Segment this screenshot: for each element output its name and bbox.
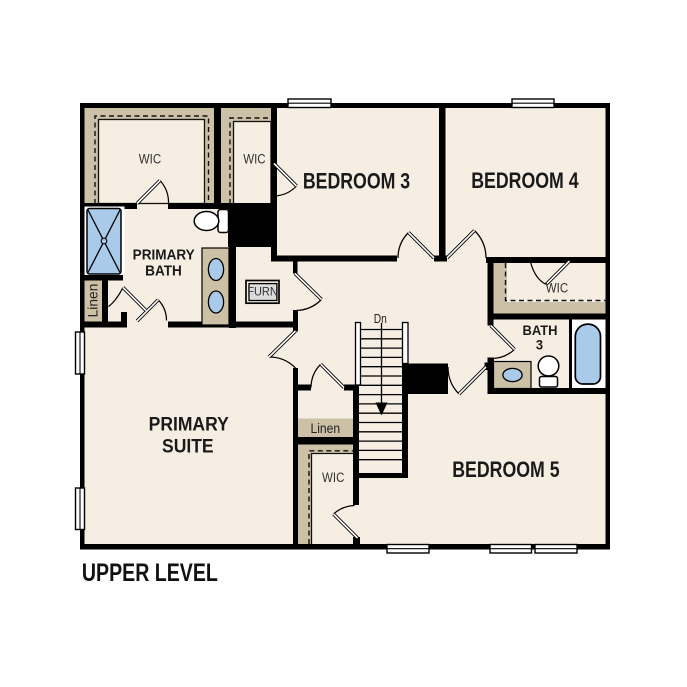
svg-text:PRIMARY: PRIMARY: [133, 247, 195, 264]
svg-text:UPPER LEVEL: UPPER LEVEL: [82, 559, 218, 587]
svg-text:Linen: Linen: [86, 284, 101, 318]
svg-text:WIC: WIC: [322, 469, 344, 485]
svg-text:Dn: Dn: [374, 313, 387, 326]
svg-text:BEDROOM 4: BEDROOM 4: [471, 169, 578, 193]
svg-text:FURN: FURN: [247, 286, 278, 299]
svg-text:BEDROOM 3: BEDROOM 3: [303, 170, 410, 194]
svg-text:BATH: BATH: [145, 263, 182, 280]
svg-text:BEDROOM 5: BEDROOM 5: [452, 458, 559, 482]
svg-text:WIC: WIC: [546, 279, 568, 295]
svg-text:WIC: WIC: [139, 150, 161, 166]
svg-text:PRIMARY: PRIMARY: [149, 413, 230, 435]
svg-text:3: 3: [536, 337, 544, 353]
svg-text:SUITE: SUITE: [162, 434, 214, 456]
svg-text:WIC: WIC: [243, 150, 265, 166]
svg-text:Linen: Linen: [311, 420, 341, 436]
